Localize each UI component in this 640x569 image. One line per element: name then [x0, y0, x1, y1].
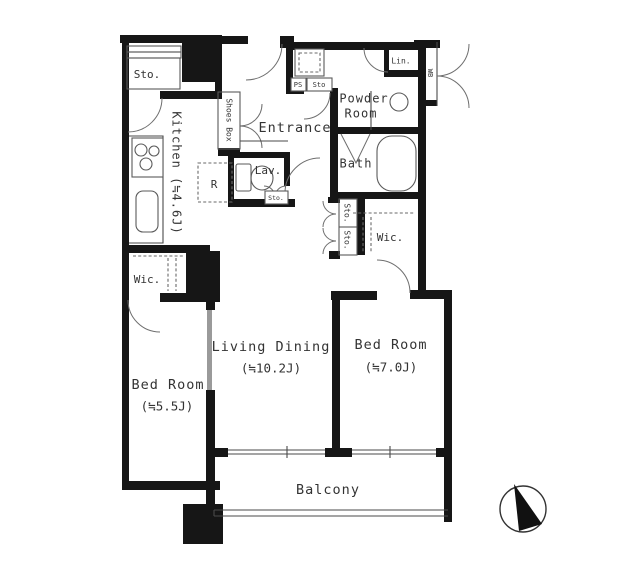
front-door-swing	[246, 44, 282, 80]
storage-shelf	[127, 52, 181, 58]
wall-box-door-swing	[437, 44, 469, 76]
pipe-space-label: PS	[294, 81, 302, 89]
bedroom-right-label: Bed Room	[354, 337, 427, 353]
linen-label: Lin.	[391, 57, 410, 66]
windows-and-railings	[207, 42, 448, 516]
bedroom-left-size: (≒5.5J)	[141, 399, 194, 414]
hall-closet-door-swing	[323, 214, 336, 227]
lavatory-label: Lav.	[255, 164, 282, 177]
compass-north-icon	[500, 484, 546, 532]
shoes-box-label: Shoes Box	[225, 98, 234, 142]
refrigerator-label: R	[211, 178, 218, 191]
wall-box-label: WB	[426, 69, 434, 77]
bath-label: Bath	[340, 157, 373, 171]
toilet-tank-icon	[236, 164, 251, 191]
hall-storage-lower-label: Sto.	[343, 230, 352, 249]
kitchen-sink	[136, 191, 158, 232]
storage-top-left-label: Sto.	[134, 68, 161, 81]
bedroom-left-door-swing	[128, 300, 160, 332]
bathtub	[377, 136, 416, 191]
stove-icon	[132, 138, 163, 177]
powder-storage-label: Sto	[313, 81, 326, 89]
floorplan-page: Sto. Kitchen (≒4.6J) Shoes Box Entrance …	[0, 0, 640, 569]
living-dining-label: Living Dining	[212, 339, 331, 355]
hall-closet-door-swing	[323, 228, 336, 241]
wic-right-label: Wic.	[377, 231, 404, 244]
lavatory-storage-label: Sto.	[268, 194, 284, 202]
kitchen-label: Kitchen (≒4.6J)	[170, 111, 184, 234]
storage-door-swing	[128, 98, 162, 132]
powder-room-door-swing	[304, 93, 330, 119]
living-door-swing	[285, 158, 320, 193]
bedroom-right-size: (≒7.0J)	[365, 360, 418, 375]
powder-room-label-line2: Room	[345, 107, 378, 121]
storage-shelf	[127, 46, 181, 52]
wic-left-label: Wic.	[134, 273, 161, 286]
bedroom-left-label: Bed Room	[131, 377, 204, 393]
floorplan-drawing: Sto. Kitchen (≒4.6J) Shoes Box Entrance …	[0, 0, 640, 569]
balcony-label: Balcony	[296, 482, 360, 498]
hall-storage-upper-label: Sto.	[343, 203, 352, 222]
wall-box-door-swing	[437, 76, 469, 108]
washbasin-icon	[390, 93, 408, 111]
powder-room-label-line1: Powder	[339, 92, 388, 106]
entrance-label: Entrance	[258, 120, 331, 136]
living-dining-size: (≒10.2J)	[241, 361, 301, 376]
bedroom-right-door-swing	[377, 260, 410, 293]
